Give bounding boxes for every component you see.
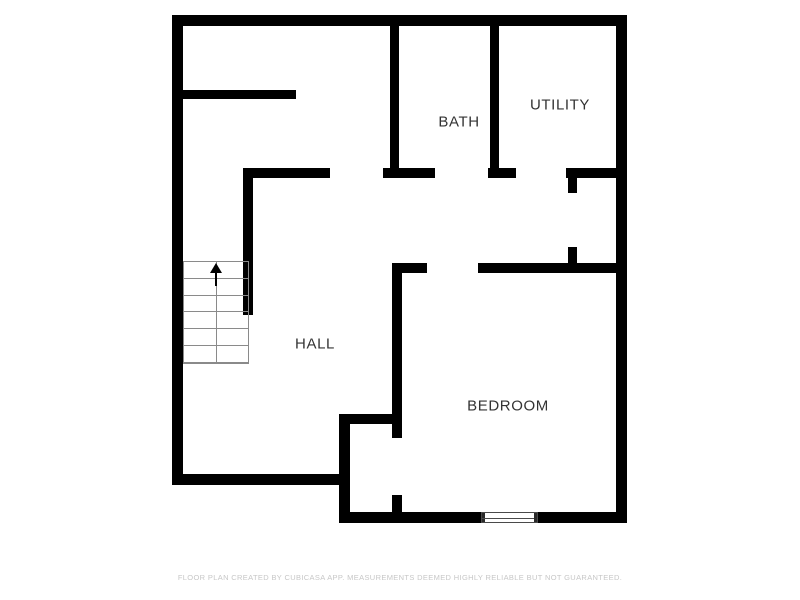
- wall-bedroom-left-upper: [392, 263, 402, 438]
- wall-bath-utility: [490, 26, 499, 178]
- stairs-up-arrow-icon: [210, 263, 222, 273]
- wall-outer-left: [172, 15, 183, 485]
- wall-bottom-step: [339, 414, 350, 523]
- room-label-utility: UTILITY: [530, 97, 590, 114]
- room-label-bath: BATH: [438, 114, 479, 131]
- room-label-bedroom: BEDROOM: [467, 398, 549, 415]
- wall-topleft-stub: [183, 90, 296, 99]
- wall-bedroom-left-lower: [392, 495, 402, 512]
- floor-plan-canvas: BATH UTILITY HALL BEDROOM FLOOR PLAN CRE…: [0, 0, 800, 600]
- disclaimer-text: FLOOR PLAN CREATED BY CUBICASA APP. MEAS…: [0, 573, 800, 582]
- bedroom-window: [481, 512, 538, 523]
- window-pane-line: [482, 518, 537, 519]
- wall-lower-seg-2: [478, 263, 627, 273]
- wall-outer-top: [172, 15, 627, 26]
- wall-bath-left: [390, 26, 399, 178]
- wall-hall-bottom: [172, 474, 350, 485]
- staircase: [183, 261, 249, 364]
- window-end-cap: [534, 513, 537, 522]
- wall-closet-stub-top: [568, 168, 577, 193]
- room-label-hall: HALL: [295, 336, 335, 353]
- wall-nook-top: [339, 414, 402, 424]
- wall-mid-seg-1: [243, 168, 330, 178]
